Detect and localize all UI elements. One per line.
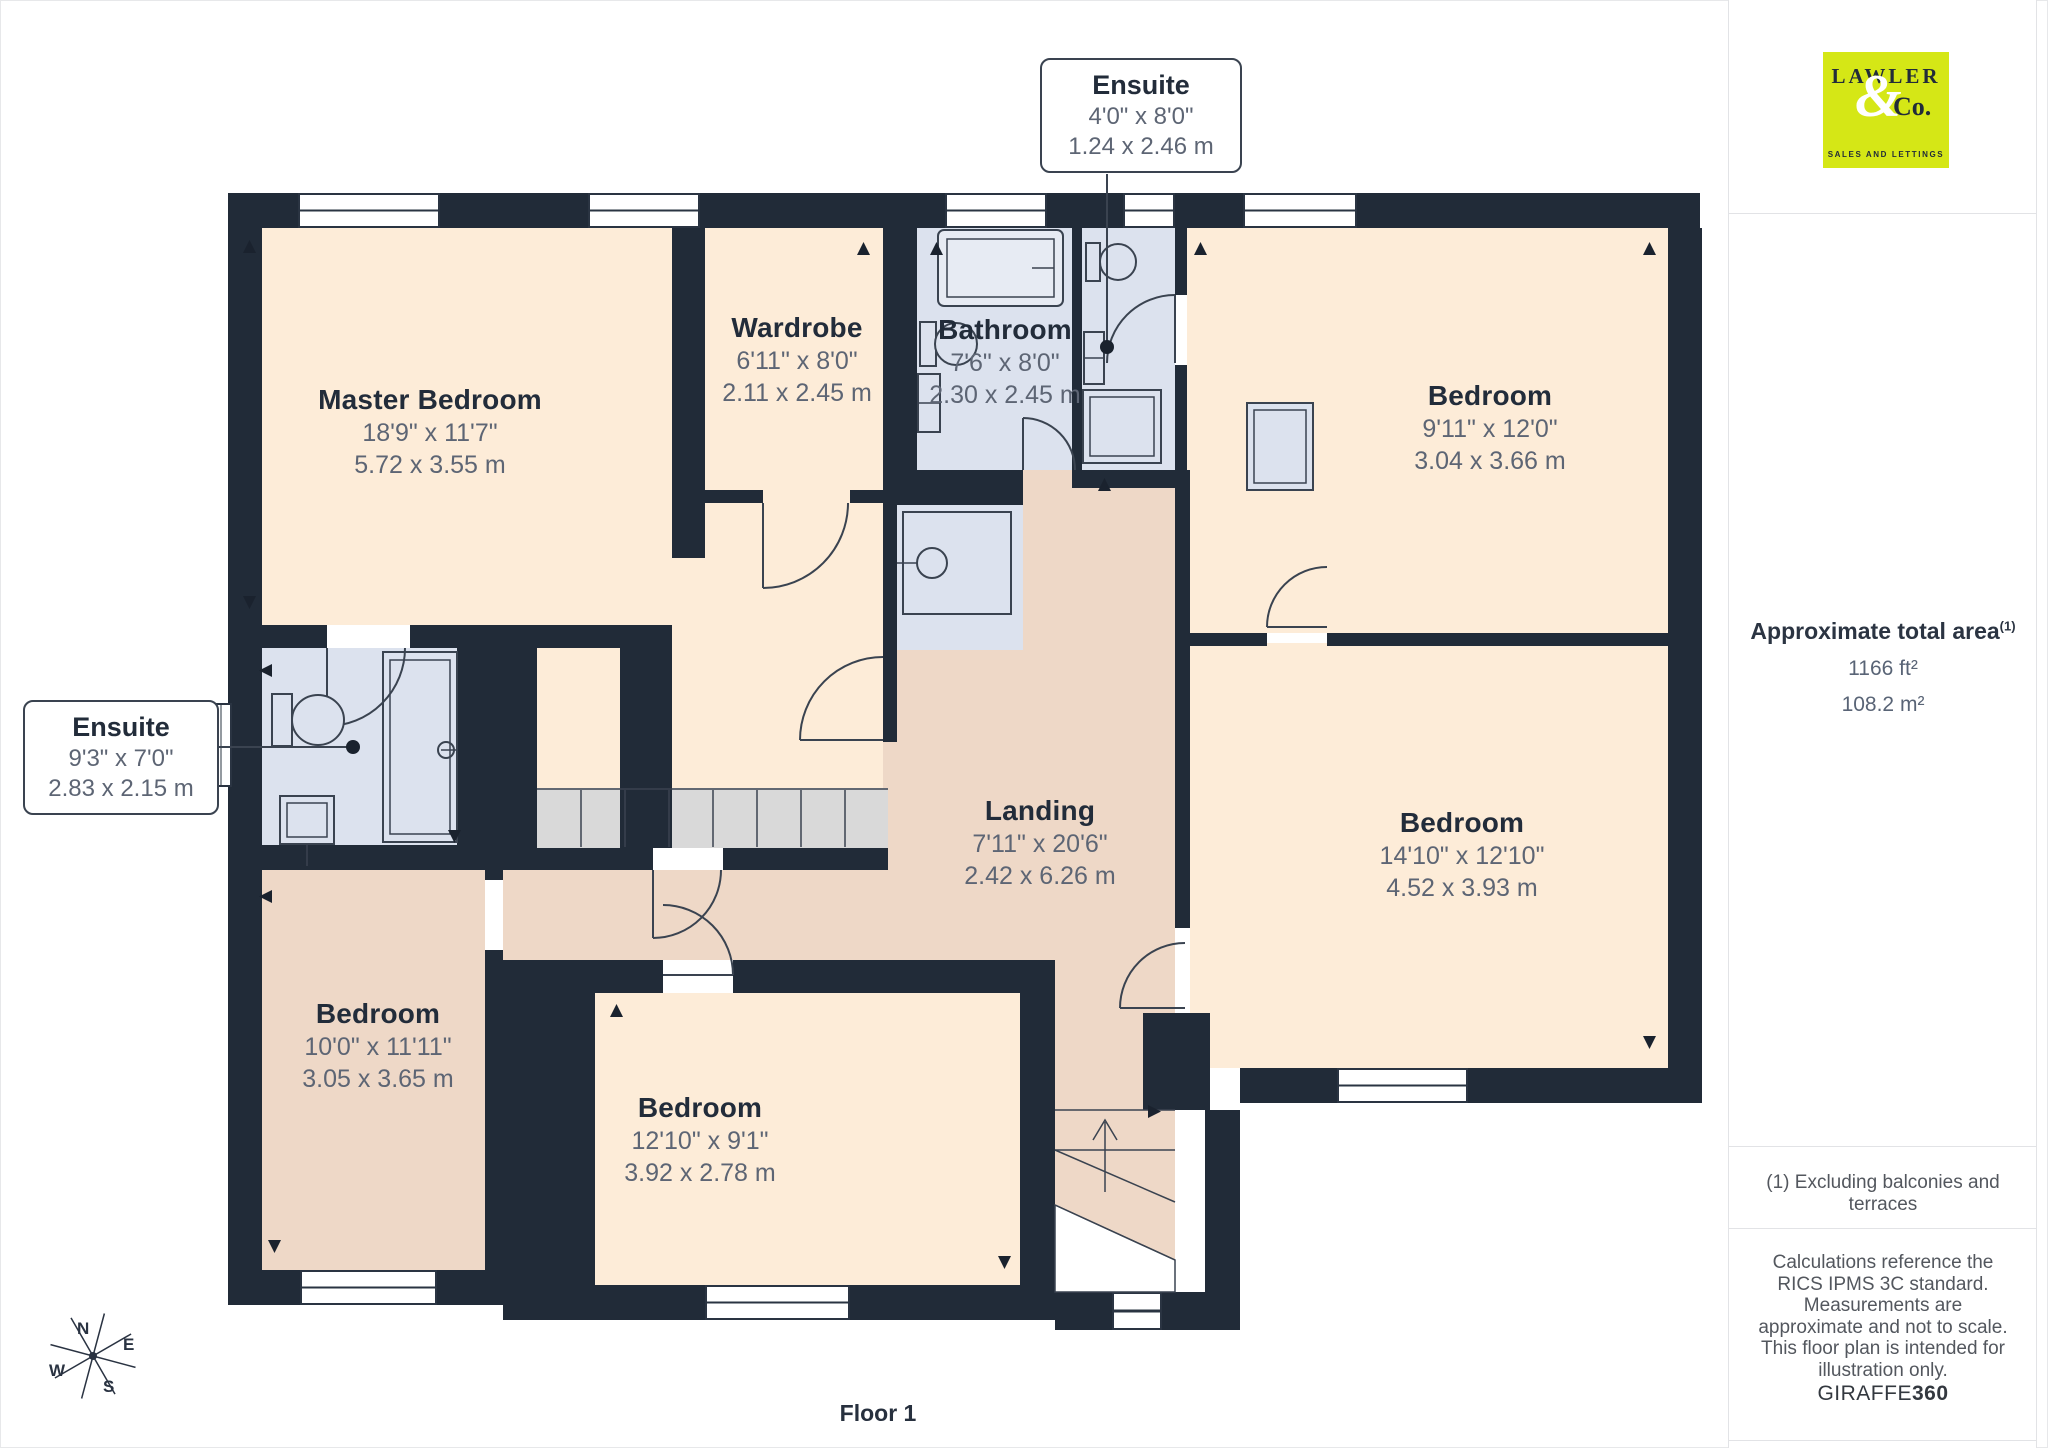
callout-ensuite-top: Ensuite 4'0" x 8'0" 1.24 x 2.46 m xyxy=(1040,58,1242,173)
wall-master-bottom-a xyxy=(228,625,327,648)
logo-co: Co. xyxy=(1893,92,1931,122)
total-area-title: Approximate total area(1) xyxy=(1743,618,2023,645)
window-bottom-bedroomBL xyxy=(300,1270,437,1305)
sidebar-divider-3 xyxy=(1729,1228,2036,1229)
wall-bathroom-bottom xyxy=(883,470,1023,505)
wall-understairs-a xyxy=(503,848,653,870)
window-top-ensuite xyxy=(1123,193,1175,228)
wall-bedroomTR-bottom-b xyxy=(1327,633,1700,646)
room-ensuite-top xyxy=(1082,227,1175,470)
disclaimer-text: Calculations reference the RICS IPMS 3C … xyxy=(1757,1252,2009,1381)
wall-stair-chunk xyxy=(1143,1013,1210,1110)
floorplan-page: { "floorplan": { "floor_label": "Floor 1… xyxy=(0,0,2048,1448)
room-ensuite-left xyxy=(262,648,457,845)
label-landing: Landing 7'11" x 20'6" 2.42 x 6.26 m xyxy=(964,795,1115,891)
wall-corridor-right xyxy=(883,503,897,742)
window-top-master xyxy=(298,193,440,228)
wall-bottom-right-bedroom xyxy=(1240,1068,1702,1103)
compass-n: N xyxy=(77,1319,89,1338)
stairs-upper xyxy=(537,788,888,848)
wall-bedroomBM-left xyxy=(503,960,595,1320)
label-master-bedroom: Master Bedroom 18'9" x 11'7" 5.72 x 3.55… xyxy=(318,384,542,480)
floor-label: Floor 1 xyxy=(798,1400,958,1427)
sidebar-divider-2 xyxy=(1729,1146,2036,1147)
giraffe360-brand: GIRAFFE360 xyxy=(1743,1382,2023,1406)
wall-wardrobe-bottom-a xyxy=(672,490,763,503)
wall-master-bottom-b xyxy=(410,625,672,648)
wall-wardrobe-bathroom xyxy=(883,193,917,503)
floorplan-canvas: N E W S Master Bedroom 18'9" x 11'7" 5.7… xyxy=(0,0,1728,1448)
agency-logo: LAWLER & Co. SALES AND LETTINGS xyxy=(1823,52,1949,168)
window-top-bedroomTR xyxy=(1243,193,1357,228)
sidebar-divider-1 xyxy=(1729,213,2036,214)
wall-bedroomTR-bottom-a xyxy=(1177,633,1267,646)
wall-landing-right xyxy=(1175,470,1190,928)
label-bedroom-top-right: Bedroom 9'11" x 12'0" 3.04 x 3.66 m xyxy=(1414,380,1565,476)
window-top-bathroom xyxy=(945,193,1047,228)
wall-corridor-left xyxy=(620,630,672,848)
wall-bedroomBL-right-b xyxy=(485,950,503,1285)
landing-lower-arm xyxy=(503,870,888,960)
total-area-block: Approximate total area(1) 1166 ft² 108.2… xyxy=(1743,618,2023,717)
label-bedroom-bottom-middle: Bedroom 12'10" x 9'1" 3.92 x 2.78 m xyxy=(624,1092,775,1188)
window-bottom-bedroomR xyxy=(1337,1068,1468,1103)
wall-wardrobe-bottom-b xyxy=(850,490,883,503)
callout-ensuite-left: Ensuite 9'3" x 7'0" 2.83 x 2.15 m xyxy=(23,700,219,815)
compass-s: S xyxy=(103,1377,114,1396)
excluding-note: (1) Excluding balconies and terraces xyxy=(1743,1172,2023,1216)
wall-stairwell-right xyxy=(1205,1110,1240,1330)
wall-bedroomBM-top-a xyxy=(503,960,663,993)
wall-ensuite-top-bottom xyxy=(1072,470,1187,488)
window-bottom-stairwell xyxy=(1112,1292,1162,1330)
wall-ensuite-bedroom-a xyxy=(1175,227,1187,295)
window-bottom-bedroomBM xyxy=(705,1285,850,1320)
sidebar-divider-4 xyxy=(1729,1440,2036,1441)
wall-bedroomBM-top-b xyxy=(733,960,1055,993)
wall-right xyxy=(1668,228,1702,1103)
wall-left xyxy=(228,228,262,1305)
logo-tagline: SALES AND LETTINGS xyxy=(1823,150,1949,159)
wall-stairs-left xyxy=(457,627,537,848)
wall-bedroomBM-right xyxy=(1020,993,1055,1320)
wall-ensuite-bedroom-b xyxy=(1175,365,1187,470)
landing-link xyxy=(888,848,897,960)
compass-icon: N E W S xyxy=(49,1313,136,1398)
compass-w: W xyxy=(49,1361,66,1380)
label-bedroom-bottom-left: Bedroom 10'0" x 11'11" 3.05 x 3.65 m xyxy=(302,998,453,1094)
room-stairtop-pocket xyxy=(537,630,620,788)
wall-master-wardrobe xyxy=(672,228,705,558)
compass-e: E xyxy=(123,1335,134,1354)
window-top-wardrobe xyxy=(588,193,700,228)
wall-understairs-b xyxy=(723,848,888,870)
area-footnote-marker: (1) xyxy=(2000,618,2016,633)
room-sink-alcove xyxy=(897,505,1023,650)
landing-top-column xyxy=(1023,470,1175,650)
total-area-imperial: 1166 ft² xyxy=(1743,657,2023,681)
info-sidebar: LAWLER & Co. SALES AND LETTINGS Approxim… xyxy=(1728,0,2037,1448)
label-bathroom: Bathroom 7'6" x 8'0" 2.30 x 2.45 m xyxy=(929,314,1080,410)
label-bedroom-right: Bedroom 14'10" x 12'10" 4.52 x 3.93 m xyxy=(1380,807,1545,903)
wall-bedroomBL-top xyxy=(228,845,503,870)
total-area-metric: 108.2 m² xyxy=(1743,693,2023,717)
label-wardrobe: Wardrobe 6'11" x 8'0" 2.11 x 2.45 m xyxy=(722,312,872,408)
